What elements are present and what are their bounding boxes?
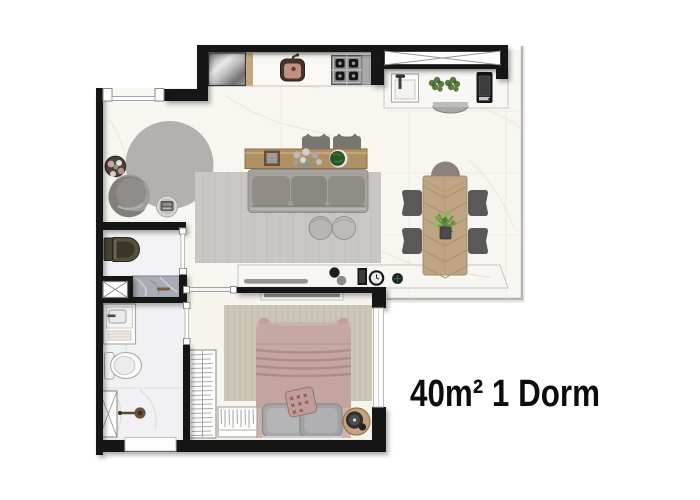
svg-text:40m² 1 Dorm: 40m² 1 Dorm — [410, 373, 600, 415]
